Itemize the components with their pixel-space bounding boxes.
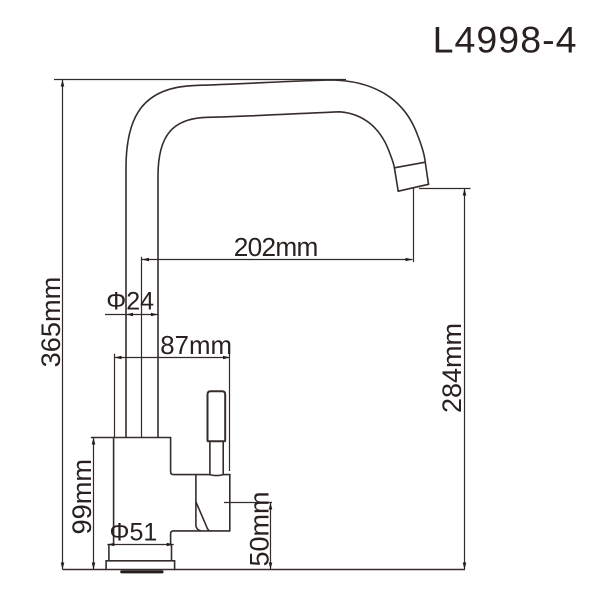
svg-text:Φ51: Φ51	[110, 519, 158, 547]
svg-text:99mm: 99mm	[66, 459, 97, 535]
svg-text:50mm: 50mm	[245, 491, 275, 566]
svg-text:202mm: 202mm	[234, 232, 318, 262]
svg-text:365mm: 365mm	[35, 277, 66, 368]
svg-text:Φ24: Φ24	[106, 288, 154, 316]
svg-text:284mm: 284mm	[437, 323, 467, 413]
svg-text:87mm: 87mm	[160, 332, 232, 360]
svg-text:L4998-4: L4998-4	[433, 19, 578, 61]
